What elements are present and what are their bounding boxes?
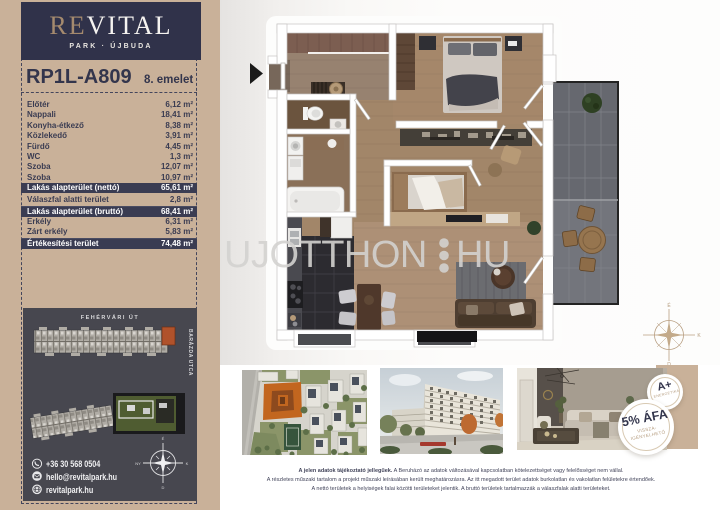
svg-text:É: É — [667, 302, 671, 309]
svg-text:K: K — [697, 333, 701, 339]
svg-text:HU: HU — [456, 234, 510, 276]
svg-text:UJOTTHON: UJOTTHON — [224, 234, 427, 276]
